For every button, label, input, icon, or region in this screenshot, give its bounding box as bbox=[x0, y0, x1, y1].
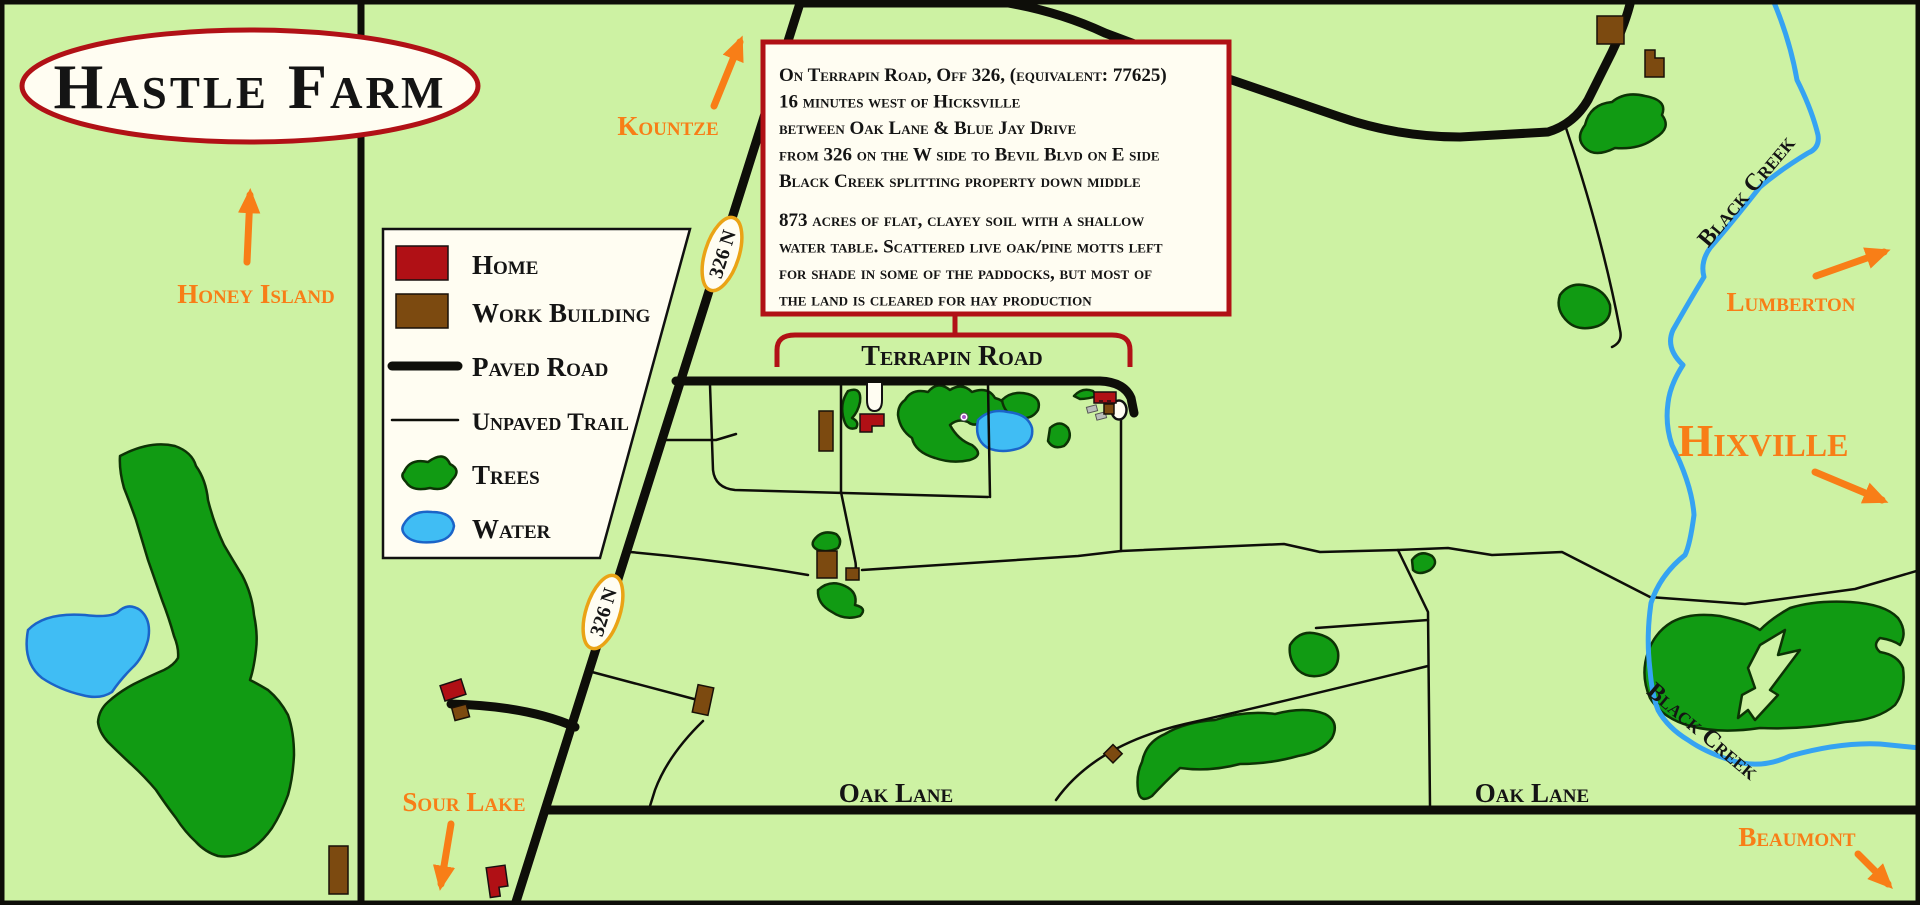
info-line: 16 minutes west of Hicksville bbox=[779, 92, 1020, 113]
legend-trees-label: Trees bbox=[472, 460, 540, 490]
beaumont-label: Beaumont bbox=[1738, 822, 1856, 852]
legend-unpaved-label: Unpaved Trail bbox=[472, 409, 629, 436]
oak-lane-east-label: Oak Lane bbox=[1475, 778, 1589, 808]
kountze-label: Kountze bbox=[617, 111, 718, 141]
work-building bbox=[846, 568, 859, 580]
tree-blob bbox=[1048, 424, 1070, 448]
honey-island-arrow bbox=[247, 195, 250, 262]
driveway-loop bbox=[867, 383, 882, 411]
info-line: Black Creek splitting property down midd… bbox=[779, 171, 1141, 192]
farm-map: 326 N 326 N On Terrapin Road, Off 326, (… bbox=[0, 0, 1920, 905]
home-window bbox=[1107, 400, 1111, 403]
legend-water-label: Water bbox=[472, 514, 551, 544]
info-line: water table. Scattered live oak/pine mot… bbox=[779, 237, 1163, 258]
work-building bbox=[819, 411, 833, 451]
tree-blob bbox=[813, 532, 840, 551]
home bbox=[1094, 392, 1116, 403]
info-line: between Oak Lane & Blue Jay Drive bbox=[779, 118, 1076, 139]
legend-water-swatch bbox=[402, 512, 454, 543]
lumberton-label: Lumberton bbox=[1727, 287, 1856, 317]
work-building bbox=[1104, 404, 1114, 414]
hixville-label: Hixville bbox=[1678, 415, 1849, 466]
info-line: On Terrapin Road, Off 326, (equivalent: … bbox=[779, 65, 1167, 86]
tree-blob bbox=[1290, 633, 1339, 676]
info-line: from 326 on the W side to Bevil Blvd on … bbox=[779, 145, 1160, 166]
title-text: Hastle Farm bbox=[54, 51, 447, 122]
map-canvas: 326 N 326 N On Terrapin Road, Off 326, (… bbox=[0, 0, 1920, 905]
info-line: 873 acres of flat, clayey soil with a sh… bbox=[779, 210, 1144, 231]
oak-lane-west-label: Oak Lane bbox=[839, 778, 953, 808]
work-building bbox=[1597, 16, 1624, 44]
map-title: Hastle Farm bbox=[22, 30, 478, 142]
info-line: the land is cleared for hay production bbox=[779, 290, 1092, 311]
marker-dot bbox=[962, 415, 966, 419]
sour-lake-label: Sour Lake bbox=[402, 787, 525, 817]
work-building bbox=[452, 704, 470, 720]
info-box: On Terrapin Road, Off 326, (equivalent: … bbox=[763, 42, 1229, 314]
work-building bbox=[329, 846, 348, 894]
legend-home-swatch bbox=[396, 246, 448, 280]
legend-home-label: Home bbox=[472, 250, 538, 280]
home-window bbox=[1099, 400, 1103, 403]
legend-paved-label: Paved Road bbox=[472, 352, 608, 382]
pond-homestead bbox=[977, 411, 1032, 451]
legend-work-swatch bbox=[396, 294, 448, 328]
tree-blob bbox=[1412, 553, 1435, 573]
work-building bbox=[817, 551, 837, 578]
terrapin-road-label: Terrapin Road bbox=[861, 341, 1042, 372]
legend-work-label: Work Building bbox=[472, 298, 651, 328]
tree-blob bbox=[842, 390, 860, 429]
honey-island-label: Honey Island bbox=[177, 279, 335, 309]
info-line: for shade in some of the paddocks, but m… bbox=[779, 263, 1152, 284]
